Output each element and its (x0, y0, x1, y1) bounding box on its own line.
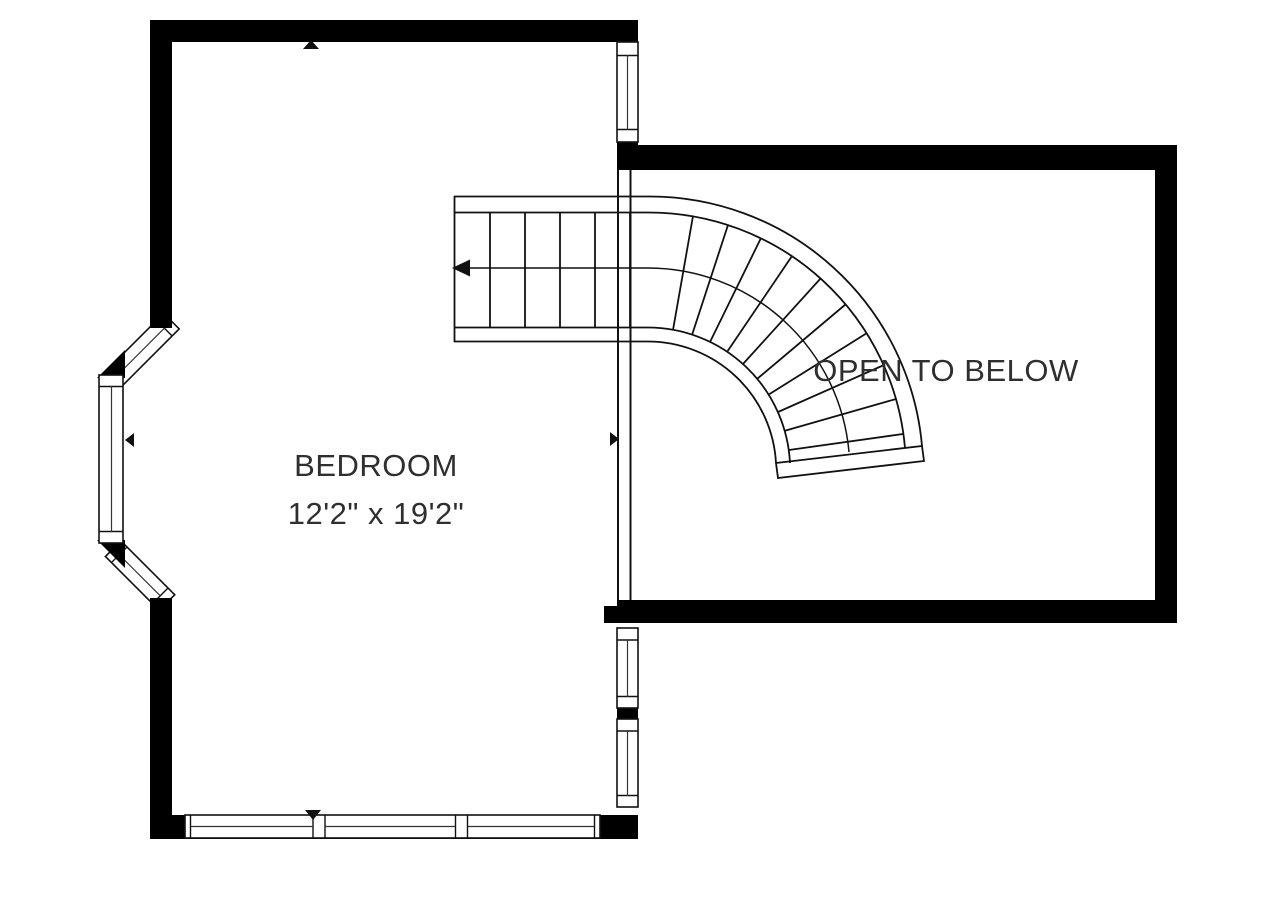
open-area-right-wall (1155, 145, 1177, 623)
window-pier-right-middle (617, 708, 638, 719)
dimension-markers (125, 40, 619, 820)
bedroom-label: BEDROOM (294, 448, 458, 484)
divider-wall (618, 170, 631, 600)
stair-treads-straight (490, 213, 630, 327)
bedroom-left-wall-lower (150, 598, 172, 839)
floorplan-canvas: BEDROOM 12'2" x 19'2" OPEN TO BELOW (0, 0, 1277, 903)
window-right-upper (617, 628, 638, 708)
staircase (452, 196, 924, 478)
window-top-right (617, 42, 638, 142)
window-right-lower (617, 719, 638, 807)
stair-treads-curved (673, 216, 903, 450)
exterior-walls (150, 20, 1177, 839)
bay-pier-upper (97, 350, 125, 378)
bedroom-top-wall (150, 20, 638, 42)
open-to-below-label: OPEN TO BELOW (813, 353, 1078, 389)
open-area-top-wall (617, 145, 1177, 170)
bay-pier-lower (97, 540, 125, 568)
bay-window-center (99, 375, 123, 543)
stair-direction-arrow (452, 260, 849, 453)
stair-end-cap (776, 446, 924, 478)
wall-pier-divider-bottom (604, 606, 638, 623)
floorplan-drawing (0, 0, 1277, 903)
bedroom-left-wall-upper (150, 20, 172, 328)
bedroom-dimensions: 12'2" x 19'2" (288, 496, 465, 532)
window-bottom-run (185, 815, 600, 838)
open-area-bottom-wall (617, 600, 1177, 623)
dimension-arrow-left (125, 433, 134, 447)
